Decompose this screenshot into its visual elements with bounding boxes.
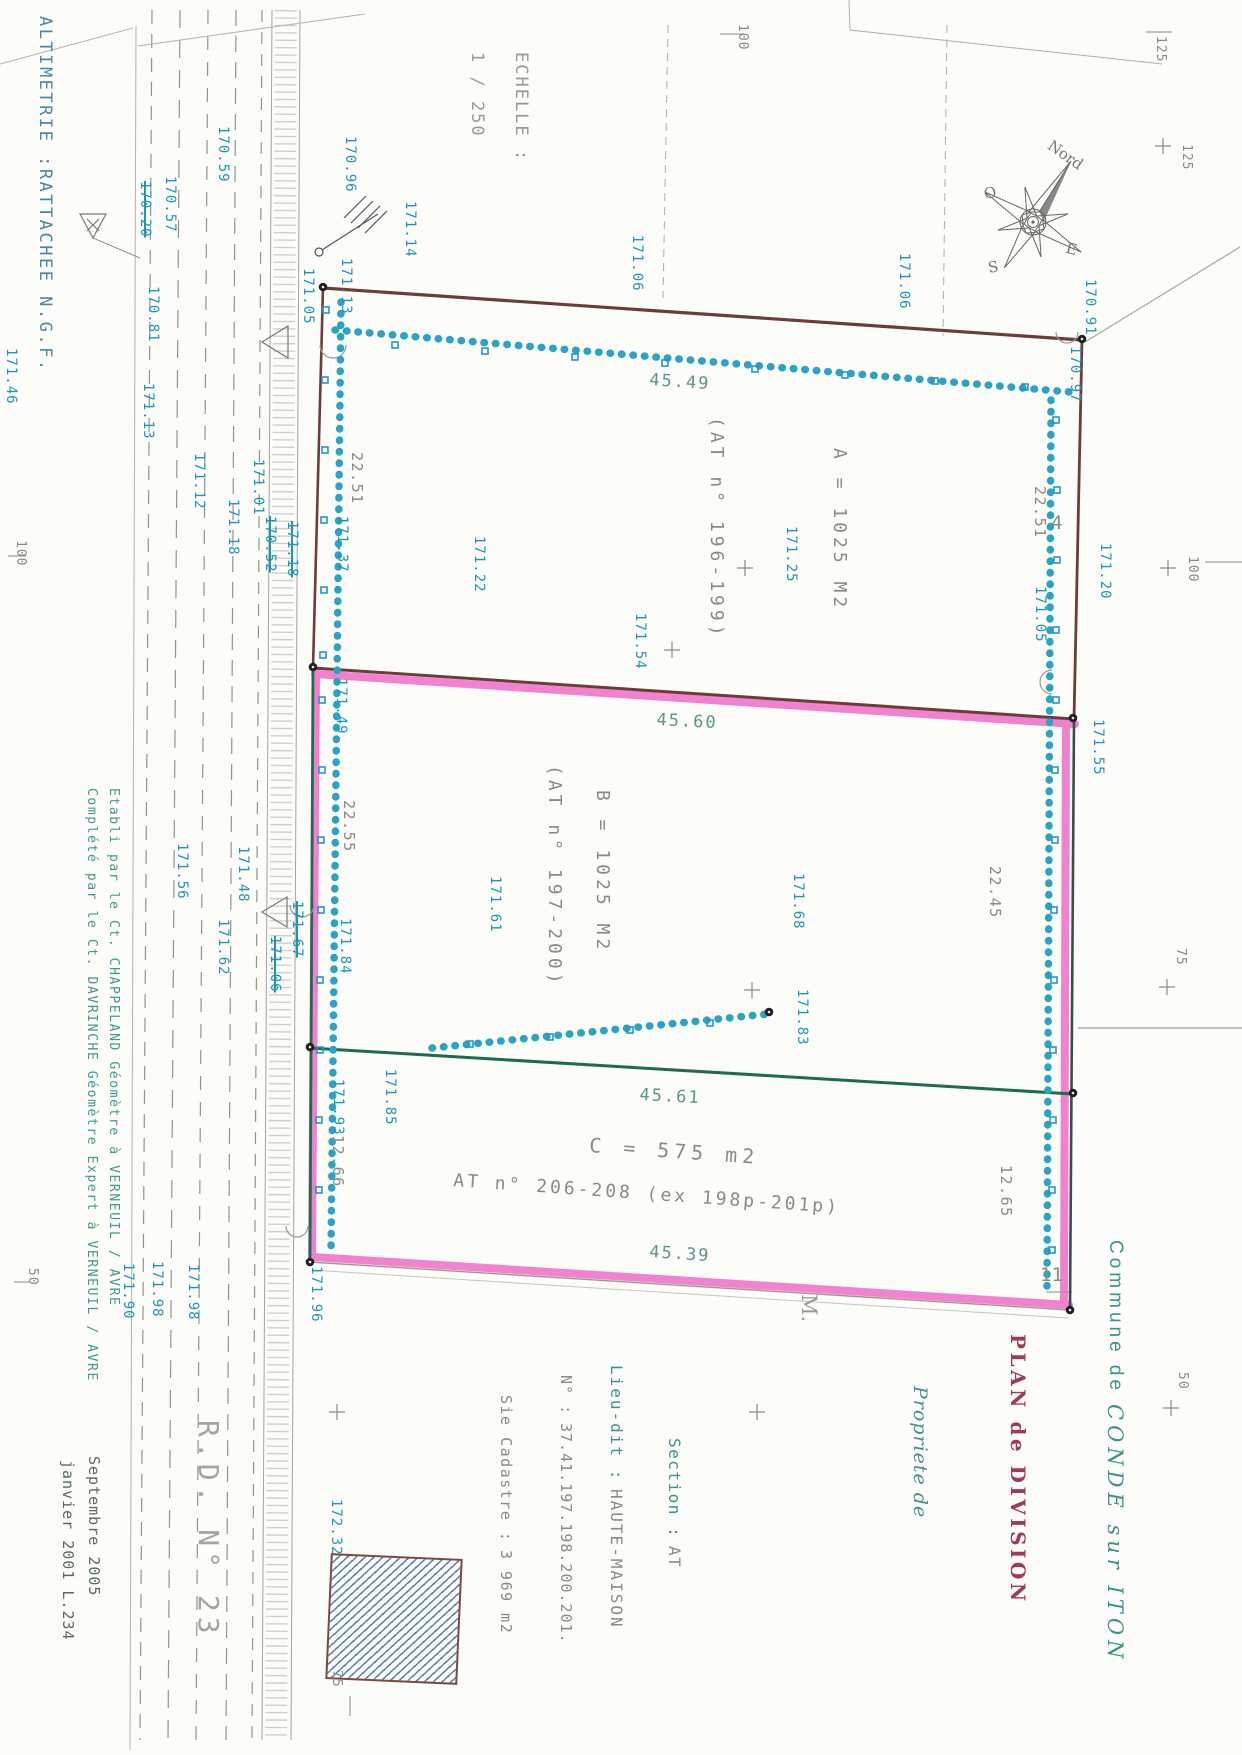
grid-coordinate-label: 75 [330, 1670, 343, 1688]
corner-point-center [309, 1046, 312, 1049]
spot-elevation-label: 171.37 [335, 516, 349, 573]
cadastre-label: Sie Cadastre : [497, 1395, 515, 1542]
grid-coordinate-label: 100 [736, 24, 749, 50]
spot-elevation-label: 170.59 [216, 126, 230, 183]
commune-line: Commune deCONDE sur ITON [1104, 1240, 1125, 1663]
fence-post-square [1050, 1117, 1056, 1123]
fence-post-square [318, 907, 324, 913]
lieu-dit-label: Lieu-dit : [607, 1365, 626, 1481]
triangle-symbol [262, 897, 287, 927]
dimension-label: 45.60 [656, 710, 718, 733]
spot-elevation-label: 171.48 [236, 846, 250, 903]
fence-post-square [1054, 557, 1060, 563]
fence-post-square [1051, 977, 1057, 983]
spot-elevation-label: 171.06 [268, 936, 282, 993]
fence-post-square [572, 354, 578, 360]
spot-elevation-label: 171.90 [121, 1263, 135, 1320]
corner-point-center [1072, 717, 1075, 720]
spot-elevation-label: 171.49 [334, 678, 348, 735]
fence-post-square [392, 342, 398, 348]
altimetrie-note: ALTIMETRIE :RATTACHEE N.G.F. [36, 16, 53, 373]
spot-elevation-label: 171.13 [141, 383, 155, 440]
corner-point-center [1081, 338, 1084, 341]
spot-elevation-label: 171.68 [791, 873, 805, 930]
commune-name: CONDE sur ITON [1103, 1394, 1127, 1663]
grid-cross [329, 1404, 345, 1420]
spot-elevation-label: 171.98 [150, 1261, 164, 1318]
spot-elevation-label: 171.14 [403, 201, 417, 258]
spot-elevation-label: 171.05 [1033, 586, 1047, 643]
dimension-label: 22.55 [341, 800, 356, 853]
spot-elevation-label: 171.06 [630, 235, 644, 292]
fence-post-square [1053, 697, 1059, 703]
scale-block: ECHELLE : 1 / 250 [455, 52, 543, 212]
date-janvier-2001: janvier 2001 L.234 [60, 1460, 75, 1641]
dimension-label: 22.51 [1032, 486, 1047, 539]
spot-elevation-label: 171.54 [633, 613, 647, 670]
dimension-label: 22.45 [987, 866, 1002, 919]
division-highlight-pink [312, 671, 1075, 1305]
spot-elevation-label: 171.96 [309, 1266, 323, 1323]
corner-point-center [312, 666, 315, 669]
spot-elevation-label: 171.83 [795, 989, 809, 1046]
corner-point-center [322, 286, 325, 289]
section-value: AT [665, 1538, 684, 1568]
spot-elevation-label: 171.20 [1098, 543, 1112, 600]
spot-elevation-label: 170.20 [138, 181, 152, 238]
spot-elevation-label: 170.97 [1068, 346, 1082, 403]
spot-elevation-label: 170.57 [163, 176, 177, 233]
fence-post-square [319, 767, 325, 773]
grid-coordinate-label: 100 [1186, 556, 1199, 582]
dimension-label: 45.39 [649, 1242, 711, 1266]
grid-cross [664, 642, 680, 658]
fence-post-square [318, 837, 324, 843]
fence-post-square [316, 1187, 322, 1193]
spot-elevation-label: 171.06 [897, 253, 911, 310]
numero-line: N° :37.41.197.198.200.201. [558, 1375, 573, 1644]
triangle-symbol [262, 326, 288, 358]
parcel-b-at-label: (AT n° 197-200) [545, 765, 563, 988]
grid-coordinate-label: 100 [14, 540, 27, 566]
pole-symbol [315, 196, 387, 256]
spot-elevation-label: 171.67 [290, 901, 304, 958]
grid-cross [749, 1404, 765, 1420]
fence-post-square [322, 377, 328, 383]
owner-name: M. [798, 1294, 819, 1322]
parcel-a-area-label: A = 1025 M2 [830, 448, 848, 611]
fence-post-square [321, 517, 327, 523]
spot-elevation-label: 171.12 [192, 453, 206, 510]
fence-post-square [319, 697, 325, 703]
spot-elevation-label: 171.18 [226, 499, 240, 556]
grid-cross [1159, 979, 1175, 995]
spot-elevation-label: 171.84 [338, 918, 352, 975]
grid-cross [744, 982, 760, 998]
spot-elevation-label: 171.22 [472, 536, 486, 593]
map-symbols [80, 131, 1119, 1237]
spot-elevation-label: 171.98 [186, 1264, 200, 1321]
numero-value: 37.41.197.198.200.201. [557, 1415, 575, 1644]
spot-elevation-label: 171.61 [488, 876, 502, 933]
parcel-b-area-label: B = 1025 M2 [593, 790, 611, 953]
fence-post-square [1053, 627, 1059, 633]
dimension-label: 22.51 [349, 452, 364, 505]
dimension-label: 45.61 [639, 1085, 701, 1108]
fence-post-square [321, 587, 327, 593]
cadastre-line: Sie Cadastre :3 969 m2 [498, 1395, 513, 1635]
spot-elevation-label: 171.05 [301, 268, 315, 325]
dimension-label: 12.65 [998, 1165, 1013, 1218]
credit-line-davrinche: Complété par le Ct. DAVRINCHE Géomètre E… [85, 788, 98, 1382]
spot-elevation-label: 170.52 [263, 516, 277, 573]
fence-post-square [320, 652, 326, 658]
plan-title: PLAN de DIVISION [1008, 1334, 1028, 1605]
dimension-label: 45.49 [649, 370, 711, 394]
grid-coordinate-label: 75 [1174, 948, 1187, 966]
spot-elevation-label: 171.93 [331, 1079, 345, 1136]
corner-point-center [309, 1261, 312, 1264]
fence-post-square [1050, 1047, 1056, 1053]
spot-elevation-label: 170.81 [146, 286, 160, 343]
spot-elevation-label: 171.56 [175, 843, 189, 900]
grid-cross [1160, 560, 1176, 576]
spot-elevation-label: 171.25 [784, 526, 798, 583]
cadastral-plan-scan: ALTIMETRIE :RATTACHEE N.G.F. ECHELLE : 1… [0, 0, 1242, 1755]
hatched-legend-swatch [325, 1553, 462, 1685]
spot-elevation-label: 171.46 [4, 348, 18, 405]
section-label: Section : [665, 1438, 684, 1538]
grid-cross [1155, 138, 1171, 154]
fence-post-square [1054, 487, 1060, 493]
spot-elevation-label: 171.01 [251, 459, 265, 516]
corner-point-center [1069, 1309, 1072, 1312]
spot-elevation-label: 171.18 [285, 521, 299, 578]
fence-post-square [323, 307, 329, 313]
commune-label: Commune de [1105, 1240, 1126, 1394]
fence-post-squares [316, 307, 1060, 1253]
spot-elevation-label: 171.55 [1091, 719, 1105, 776]
parcel-a-at-label: (AT n° 196-199) [707, 417, 725, 640]
fence-post-square [1052, 837, 1058, 843]
grid-coordinate-label: 50 [1176, 1372, 1189, 1390]
date-septembre-2005: Septembre 2005 [86, 1456, 101, 1596]
grid-coordinate-label: 125 [1154, 36, 1167, 62]
point-number-label: 4 [1051, 512, 1062, 534]
spot-elevation-label: 170.96 [343, 136, 357, 193]
scale-value: 1 / 250 [455, 52, 499, 212]
grid-coordinate-label: 50 [26, 1268, 39, 1286]
scale-label: ECHELLE : [499, 52, 543, 212]
owner-label: Propriete de [910, 1386, 929, 1518]
spot-elevation-label: 171.85 [383, 1069, 397, 1126]
credit-line-chappeland: Etabli par le Ct. CHAPPELAND Géomètre à … [107, 788, 120, 1306]
spot-elevation-label: 171.62 [216, 919, 230, 976]
corner-point-center [768, 1011, 771, 1014]
point-number-label: 11 [1040, 1264, 1063, 1286]
fence-post-square [322, 447, 328, 453]
cadastre-value: 3 969 m2 [497, 1542, 515, 1634]
grid-cross [737, 560, 753, 576]
spot-elevation-label: 172.32 [329, 1499, 343, 1556]
fence-post-square [482, 348, 488, 354]
numero-label: N° : [557, 1375, 575, 1415]
dimension-label: 12.66 [330, 1135, 345, 1188]
corner-point-center [1072, 1092, 1075, 1095]
spot-elevation-label: 171.13 [339, 258, 353, 315]
grid-cross [1163, 1400, 1179, 1416]
grid-coordinate-label: 125 [1180, 144, 1193, 170]
benchmark-symbol [80, 214, 140, 258]
lieu-dit-line: Lieu-dit :HAUTE-MAISON [608, 1365, 624, 1629]
section-line: Section :AT [666, 1438, 682, 1568]
road-name: R.D. N° 23 [194, 1420, 222, 1639]
compass-rose [956, 131, 1119, 298]
spot-elevation-label: 170.91 [1083, 279, 1097, 336]
lieu-dit-value: HAUTE-MAISON [607, 1481, 626, 1629]
